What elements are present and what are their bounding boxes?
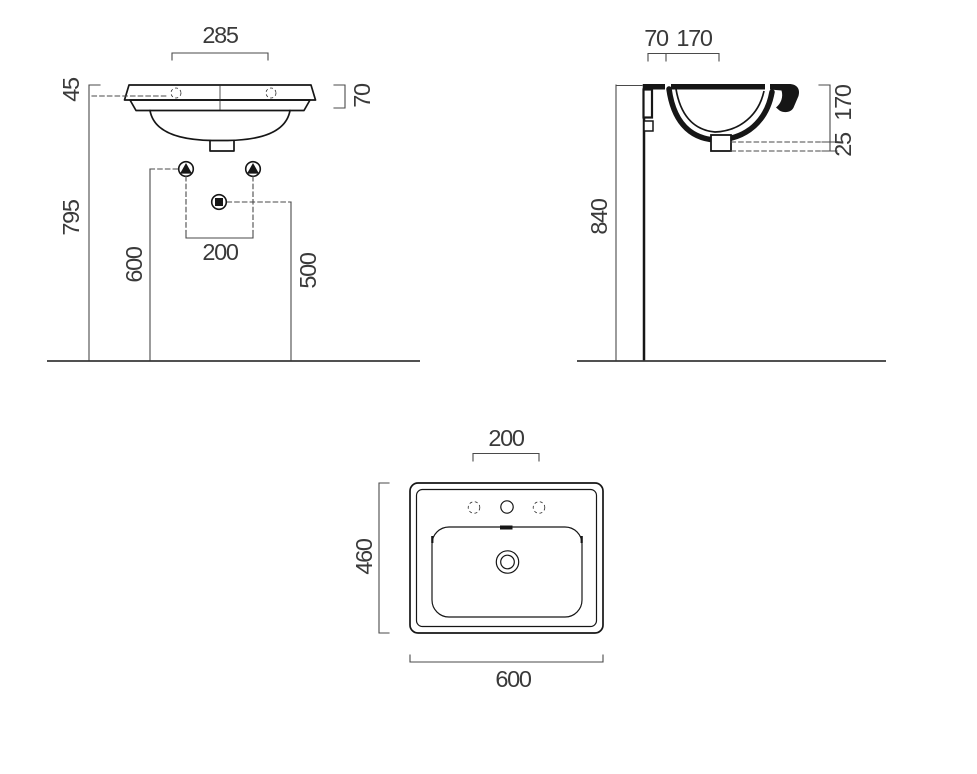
overflow-slot-icon (500, 526, 513, 530)
dim-label-840: 840 (586, 198, 612, 235)
plan-outer-rect (410, 483, 603, 633)
back-ledge-section (644, 90, 653, 118)
dim-line-840 (616, 85, 642, 361)
front-rim-hook-section (770, 84, 799, 112)
trap-level-lines (731, 142, 823, 151)
dim-bracket-70 (334, 85, 345, 108)
dim-label-drop-170: 170 (830, 84, 856, 121)
dim-label-bottom-600: 600 (495, 666, 532, 692)
dim-bracket-600 (410, 655, 603, 662)
tap-hole-left-hidden-icon (171, 88, 181, 98)
plan-inner-rect (417, 490, 597, 627)
dim-bracket-70-170 (648, 54, 719, 62)
basin-section-profile (643, 84, 799, 151)
side-view: 70 170 840 170 25 (577, 25, 886, 361)
technical-drawing-canvas: 285 45 795 70 600 500 (0, 0, 977, 774)
tap-hole-right-hidden-icon (266, 88, 276, 98)
front-view: 285 45 795 70 600 500 (47, 22, 420, 361)
tap-hole-center-icon (501, 501, 513, 513)
drain-hole-outer-icon (496, 551, 518, 573)
bracket-block-section (644, 121, 653, 131)
dim-label-trap-25: 25 (830, 132, 856, 157)
washbasin-drawing: 285 45 795 70 600 500 (0, 0, 977, 774)
waste-point-icon (212, 195, 227, 210)
tap-hole-left-icon (468, 502, 480, 514)
bowl-edge-tick-left (431, 536, 433, 543)
fixing-point-left-icon (179, 162, 194, 177)
rim-section-main (671, 84, 765, 90)
dim-label-depth-170: 170 (676, 25, 713, 51)
waste-outlet-section (711, 135, 731, 151)
dim-line-795 (89, 85, 100, 361)
plan-bowl-rect (432, 527, 582, 617)
dim-label-45: 45 (58, 77, 84, 102)
dim-label-460: 460 (351, 538, 377, 575)
drain-hole-inner-icon (501, 555, 515, 569)
dim-bracket-top-200 (473, 454, 539, 462)
dim-bracket-285 (172, 53, 268, 60)
basin-front-outline (125, 85, 316, 151)
dim-label-offset-70: 70 (644, 25, 669, 51)
dim-bracket-460 (379, 483, 389, 633)
dim-label-200: 200 (202, 239, 239, 265)
dim-label-top-200: 200 (488, 425, 525, 451)
dim-label-285: 285 (202, 22, 239, 48)
dim-bracket-200 (186, 231, 253, 238)
bowl-outline (150, 111, 290, 141)
plan-view: 200 460 600 (351, 425, 603, 692)
dim-label-600: 600 (121, 246, 147, 283)
basin-plan-outline (410, 483, 603, 633)
bowl-edge-tick-right (581, 536, 583, 543)
tap-hole-right-icon (533, 502, 545, 514)
waste-tab-outline (210, 141, 234, 152)
fixing-point-right-icon (246, 162, 261, 177)
dim-label-795: 795 (58, 199, 84, 236)
dim-label-500: 500 (295, 252, 321, 289)
dim-label-70: 70 (349, 83, 375, 108)
